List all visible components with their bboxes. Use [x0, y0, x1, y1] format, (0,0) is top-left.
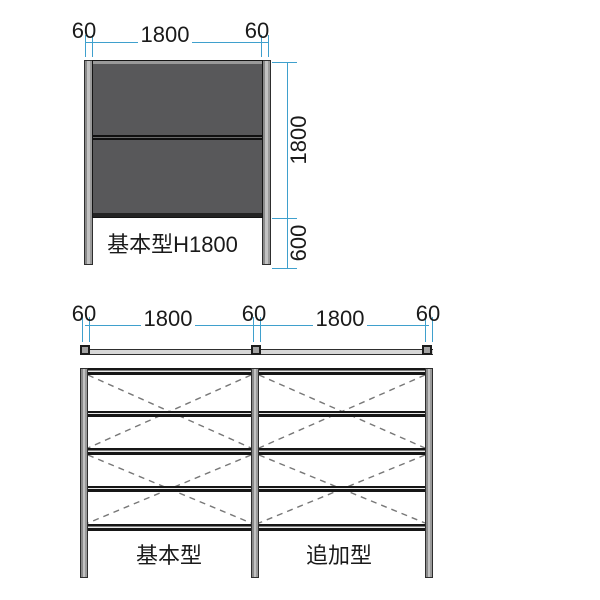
dim-label-post-width-right: 60	[243, 20, 271, 42]
dim-label-embed-depth: 600	[288, 203, 312, 283]
dimension-diagram: 60 1800 60 1800 600 基本型H1800 60 1800	[0, 0, 600, 600]
panel-bottom-edge	[93, 213, 262, 217]
dim-label-plan-5: 60	[414, 303, 442, 325]
front-view-caption: 基本型H1800	[87, 233, 258, 256]
elevation-post-left	[80, 368, 88, 578]
front-right-post	[262, 60, 271, 265]
dim-label-plan-3: 60	[240, 303, 268, 325]
elevation-post-middle	[251, 368, 259, 578]
front-panel	[92, 60, 263, 218]
dim-label-plan-4: 1800	[313, 308, 367, 330]
bay-caption-additional: 追加型	[279, 544, 399, 567]
dim-label-plan-1: 60	[70, 303, 98, 325]
plan-post-right	[422, 345, 432, 355]
dim-tick	[272, 62, 297, 63]
dim-label-panel-width: 1800	[138, 24, 192, 46]
plan-post-left	[80, 345, 90, 355]
dim-label-panel-height: 1800	[288, 70, 312, 210]
dim-label-plan-2: 1800	[141, 308, 195, 330]
elevation-post-right	[425, 368, 433, 578]
plan-post-middle	[251, 345, 261, 355]
panel-middle-rail	[93, 135, 262, 140]
bay-caption-basic: 基本型	[109, 544, 229, 567]
dim-label-post-width-left: 60	[70, 20, 98, 42]
panel-top-edge	[93, 61, 262, 64]
